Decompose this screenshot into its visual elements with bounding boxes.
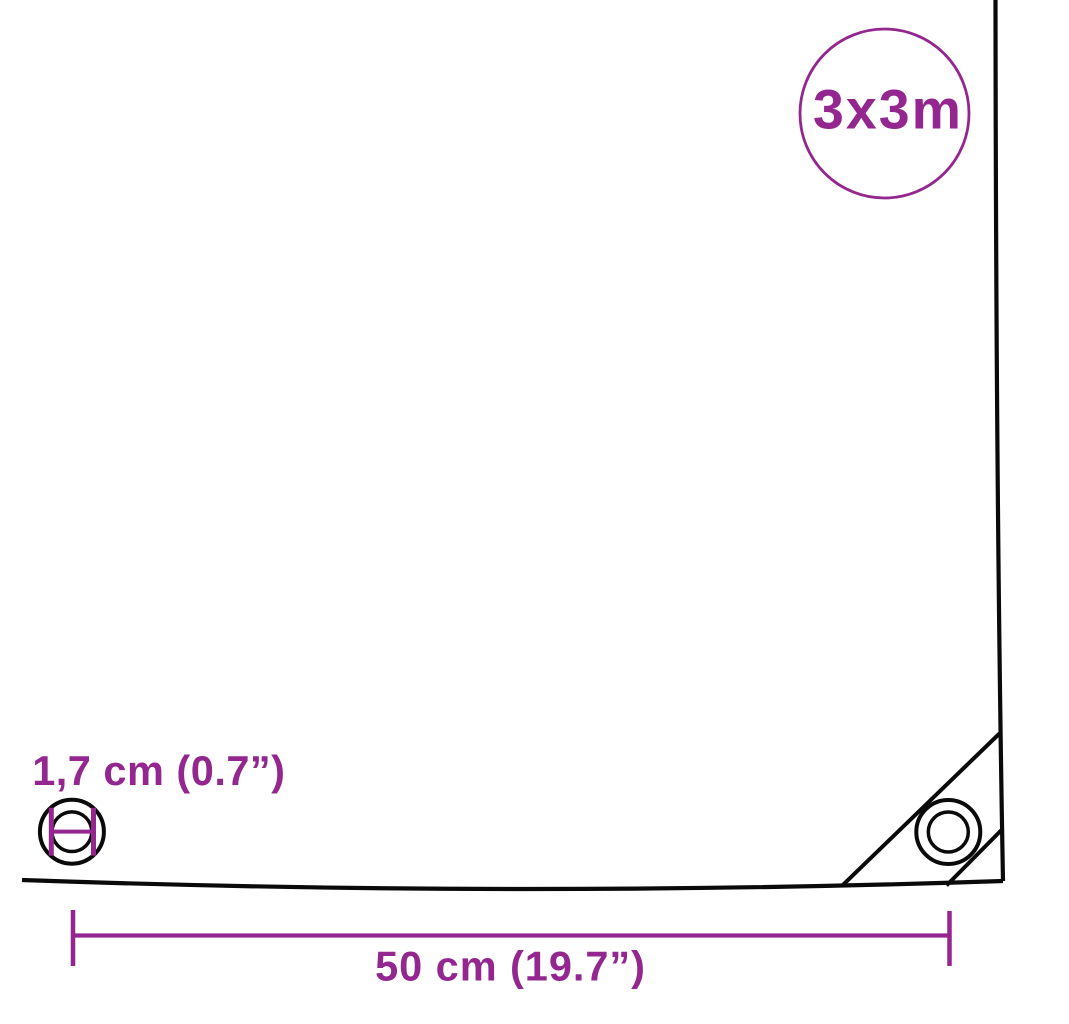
svg-text:1,7 cm (0.7”): 1,7 cm (0.7”)	[32, 747, 285, 794]
svg-text:3x3m: 3x3m	[813, 79, 963, 141]
svg-text:50 cm (19.7”): 50 cm (19.7”)	[375, 943, 646, 990]
